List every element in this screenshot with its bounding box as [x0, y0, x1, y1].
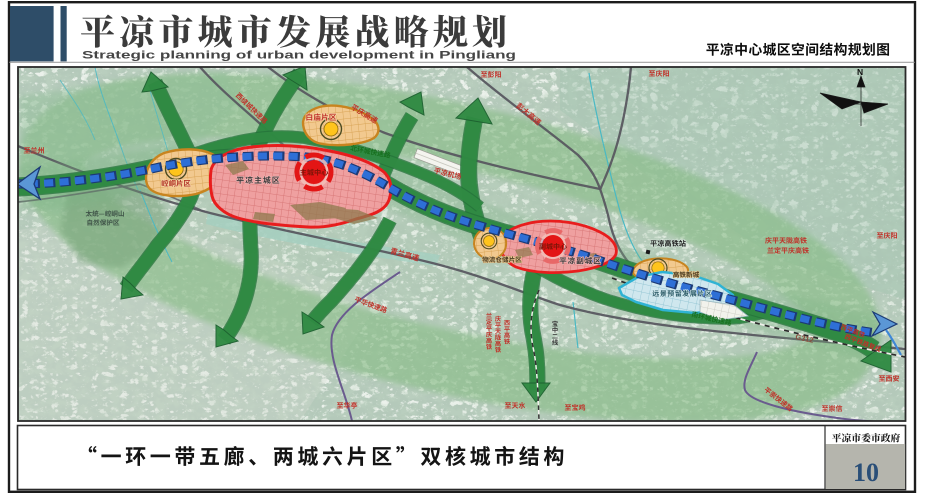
svg-text:N: N: [857, 67, 863, 77]
svg-text:Strategic planning of urban de: Strategic planning of urban development …: [82, 50, 516, 62]
svg-text:10: 10: [853, 458, 879, 487]
